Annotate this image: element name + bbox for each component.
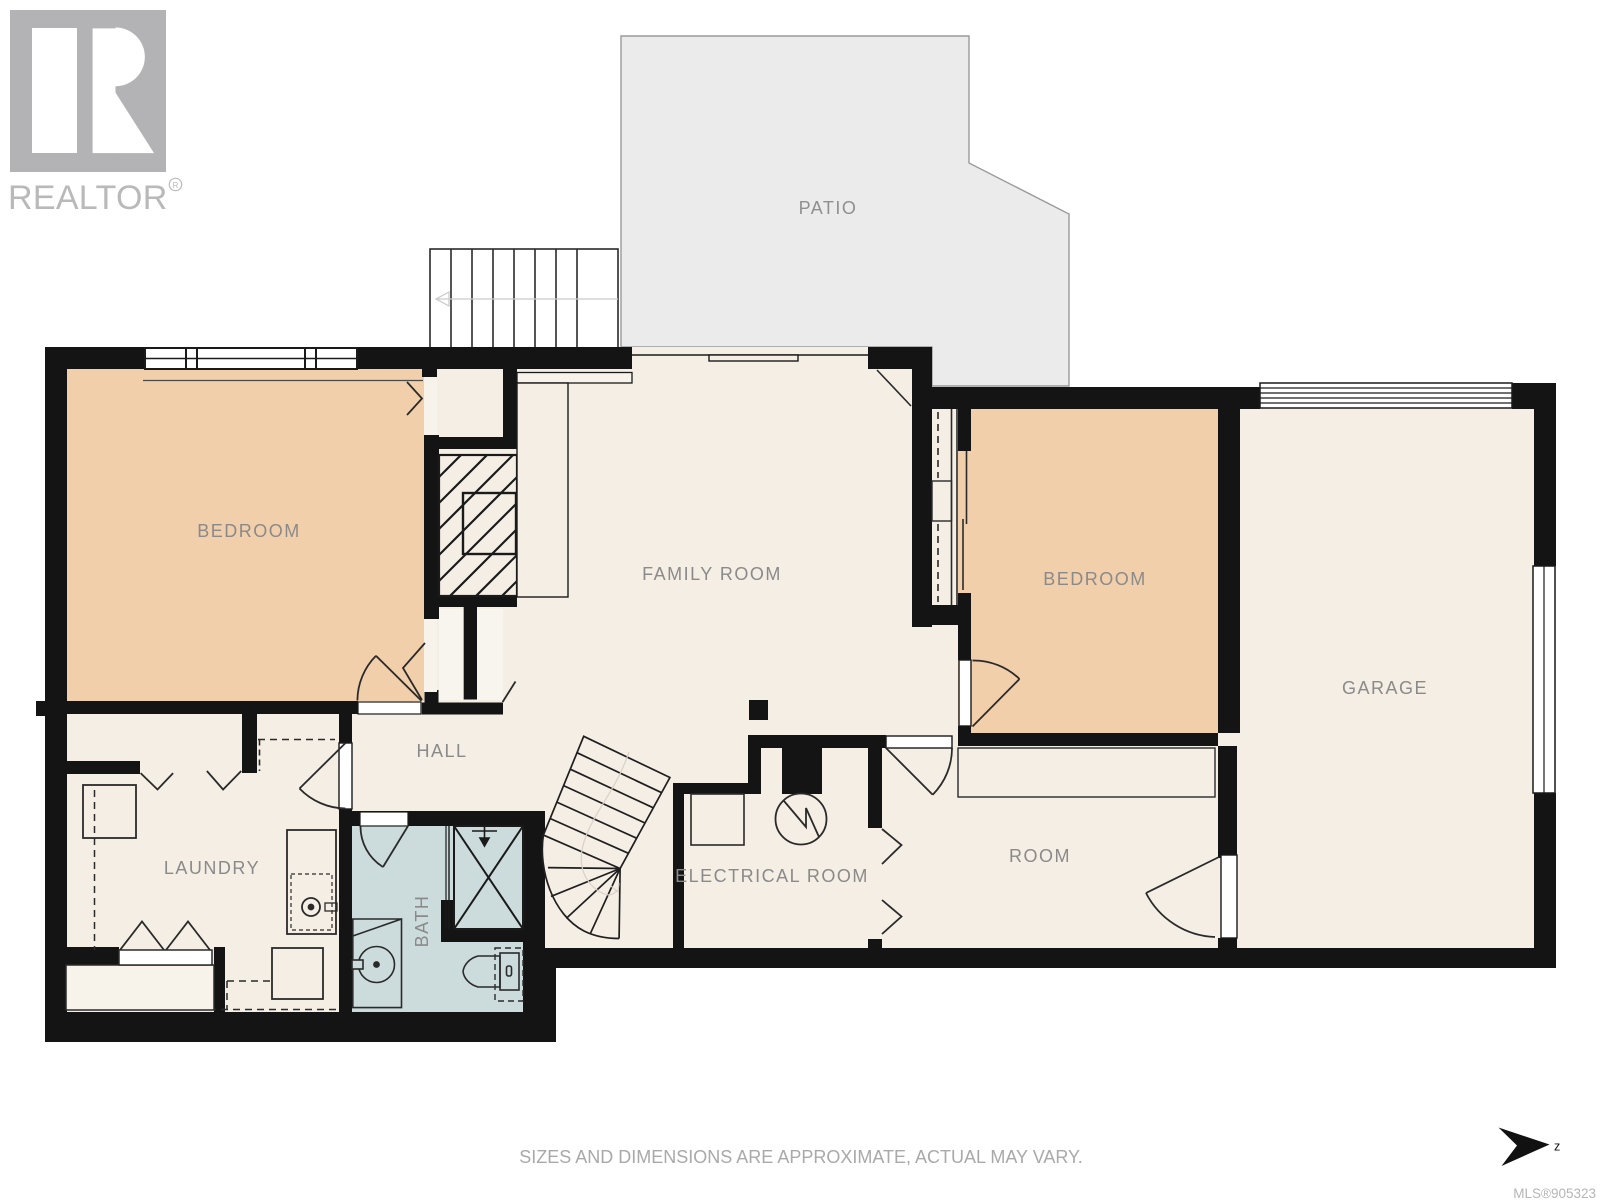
svg-text:BEDROOM: BEDROOM	[197, 521, 301, 541]
svg-text:R: R	[173, 181, 179, 190]
svg-text:MLS®905323: MLS®905323	[1513, 1186, 1596, 1200]
svg-text:LAUNDRY: LAUNDRY	[164, 858, 260, 878]
svg-text:HALL: HALL	[416, 741, 467, 761]
svg-text:ELECTRICAL ROOM: ELECTRICAL ROOM	[675, 866, 869, 886]
svg-text:REALTOR: REALTOR	[8, 179, 168, 217]
svg-text:ROOM: ROOM	[1009, 846, 1071, 866]
svg-text:GARAGE: GARAGE	[1342, 678, 1428, 698]
svg-text:SIZES AND DIMENSIONS ARE APPRO: SIZES AND DIMENSIONS ARE APPROXIMATE, AC…	[519, 1147, 1083, 1167]
svg-text:BEDROOM: BEDROOM	[1043, 569, 1147, 589]
svg-text:PATIO: PATIO	[799, 198, 858, 218]
svg-text:z: z	[1554, 1140, 1560, 1154]
svg-text:FAMILY ROOM: FAMILY ROOM	[642, 564, 782, 584]
svg-text:BATH: BATH	[412, 895, 432, 948]
